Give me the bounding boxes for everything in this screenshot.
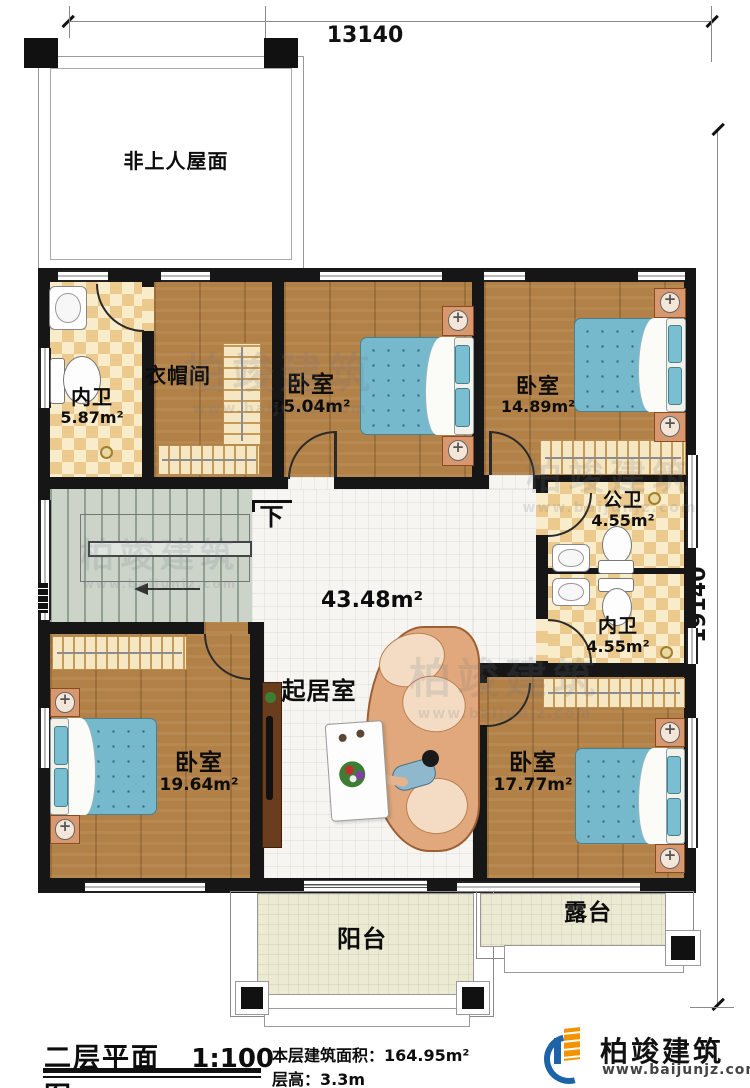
stairs-handrail xyxy=(88,541,252,557)
floor-area-line: 本层建筑面积：164.95m² xyxy=(272,1042,469,1066)
title-underline-thick xyxy=(43,1068,261,1073)
dimension-line-right xyxy=(717,130,718,1006)
window xyxy=(638,270,685,282)
nightstand-icon xyxy=(442,306,474,336)
sink-icon xyxy=(552,544,590,572)
bed-icon xyxy=(50,718,157,815)
person-head xyxy=(422,750,439,767)
door-opening xyxy=(536,619,548,661)
nightstand-icon xyxy=(50,688,80,717)
room-name: 非上人屋面 xyxy=(96,150,256,173)
drawing-title-row: 二层平面图 1:100 xyxy=(44,1036,274,1088)
window xyxy=(484,270,525,282)
nightstand-icon xyxy=(442,436,474,466)
extension-line xyxy=(690,1007,734,1008)
floor-height-value: 3.3m xyxy=(320,1070,365,1088)
stairs-arrow-head xyxy=(128,583,148,595)
room-label-bedroom-right: 卧室 17.77m² xyxy=(483,750,583,796)
room-label-bath-public: 公卫 4.55m² xyxy=(573,490,673,530)
window xyxy=(320,270,442,282)
balcony-column xyxy=(457,982,489,1014)
extension-line xyxy=(265,6,266,38)
balcony-step xyxy=(264,1008,470,1027)
room-label-cloakroom: 衣帽间 xyxy=(128,364,228,388)
coffee-table-icon xyxy=(325,720,390,822)
pillow xyxy=(54,768,68,807)
pillow xyxy=(667,756,681,795)
window xyxy=(85,881,205,893)
stairs-down-label: 下 xyxy=(254,504,290,532)
room-label-living: 起居室 xyxy=(269,678,369,706)
cup-icon xyxy=(356,729,365,738)
room-label-bedroom-top: 卧室 25.04m² xyxy=(261,372,361,418)
floor-height-label: 层高： xyxy=(272,1070,320,1088)
pillow xyxy=(667,798,681,837)
door-opening xyxy=(489,475,533,489)
window xyxy=(686,628,698,664)
balcony-column xyxy=(236,982,268,1014)
dimension-top-label: 13140 xyxy=(315,23,415,48)
door-opening xyxy=(204,622,248,634)
room-label-terrace: 露台 xyxy=(538,900,638,926)
wardrobe-rail xyxy=(548,692,680,694)
dimension-tick xyxy=(711,123,724,136)
room-label-living-area: 43.48m² xyxy=(321,588,421,613)
sink-icon xyxy=(49,286,87,330)
bed-icon xyxy=(360,337,474,435)
wardrobe-rail xyxy=(57,652,182,654)
bed-sheet xyxy=(67,718,96,815)
closet-rail xyxy=(241,347,243,441)
window xyxy=(58,270,108,282)
nightstand-icon xyxy=(655,718,685,747)
toilet-icon xyxy=(602,526,632,564)
wardrobe xyxy=(52,636,187,670)
floor-drain-icon xyxy=(100,446,113,459)
sink-icon xyxy=(552,578,590,606)
closet xyxy=(158,445,260,475)
wardrobe xyxy=(540,440,686,475)
brand-logo xyxy=(544,1026,594,1082)
nightstand-icon xyxy=(654,288,686,318)
roof-column xyxy=(264,38,298,68)
door-opening xyxy=(536,493,548,535)
dimension-line-top xyxy=(68,21,712,22)
brand-website: www.baijunjz.com xyxy=(602,1062,750,1078)
bed-sheet xyxy=(425,337,456,435)
window xyxy=(686,455,698,548)
floor-living-c xyxy=(473,489,536,663)
floor-height-line: 层高：3.3m xyxy=(272,1066,365,1088)
extension-line xyxy=(69,6,70,38)
door-leaf xyxy=(334,431,337,477)
room-label-bath-top-left: 内卫 5.87m² xyxy=(40,386,144,427)
roof-column xyxy=(24,38,58,68)
logo-building-icon xyxy=(564,1027,580,1061)
closet xyxy=(223,343,261,445)
extension-line xyxy=(711,6,712,62)
door-leaf xyxy=(489,431,492,475)
floor-area-value: 164.95m² xyxy=(384,1046,469,1065)
bed-icon xyxy=(574,318,686,412)
pillow xyxy=(455,388,469,427)
room-label-roof: 非上人屋面 xyxy=(96,150,256,173)
room-label-bedroom-left: 卧室 19.64m² xyxy=(149,750,249,796)
wardrobe-rail xyxy=(545,457,680,459)
closet-rail xyxy=(162,459,256,461)
bed-sheet xyxy=(638,318,669,412)
nightstand-icon xyxy=(655,844,685,873)
room-label-bedroom-top-right: 卧室 14.89m² xyxy=(488,374,588,417)
tv-icon xyxy=(266,716,273,800)
stairs-arrow xyxy=(140,588,200,590)
nightstand-icon xyxy=(50,815,80,844)
pillow xyxy=(668,325,682,363)
dimension-tick xyxy=(711,998,724,1011)
floor-area-label: 本层建筑面积： xyxy=(272,1046,384,1065)
cup-icon xyxy=(338,734,347,743)
pillow xyxy=(455,345,469,384)
title-underline-thin xyxy=(43,1076,261,1078)
drawing-title: 二层平面图 xyxy=(44,1036,179,1088)
room-label-balcony: 阳台 xyxy=(312,926,412,954)
window xyxy=(686,718,698,848)
pillow xyxy=(54,726,68,765)
wardrobe xyxy=(543,678,685,708)
logo-building-icon xyxy=(554,1038,561,1064)
terrace-column xyxy=(666,931,700,965)
window xyxy=(161,270,210,282)
nightstand-icon xyxy=(654,412,686,442)
room-label-bath-ensuite: 内卫 4.55m² xyxy=(568,616,668,656)
toilet-icon xyxy=(598,560,634,574)
pillow xyxy=(668,367,682,405)
bed-sheet xyxy=(638,748,668,844)
bed-icon xyxy=(575,748,685,844)
electrical-panel xyxy=(38,583,48,613)
floor-plan: 13140 19140 非上人屋面 xyxy=(0,0,750,1088)
terrace-step xyxy=(504,945,684,973)
